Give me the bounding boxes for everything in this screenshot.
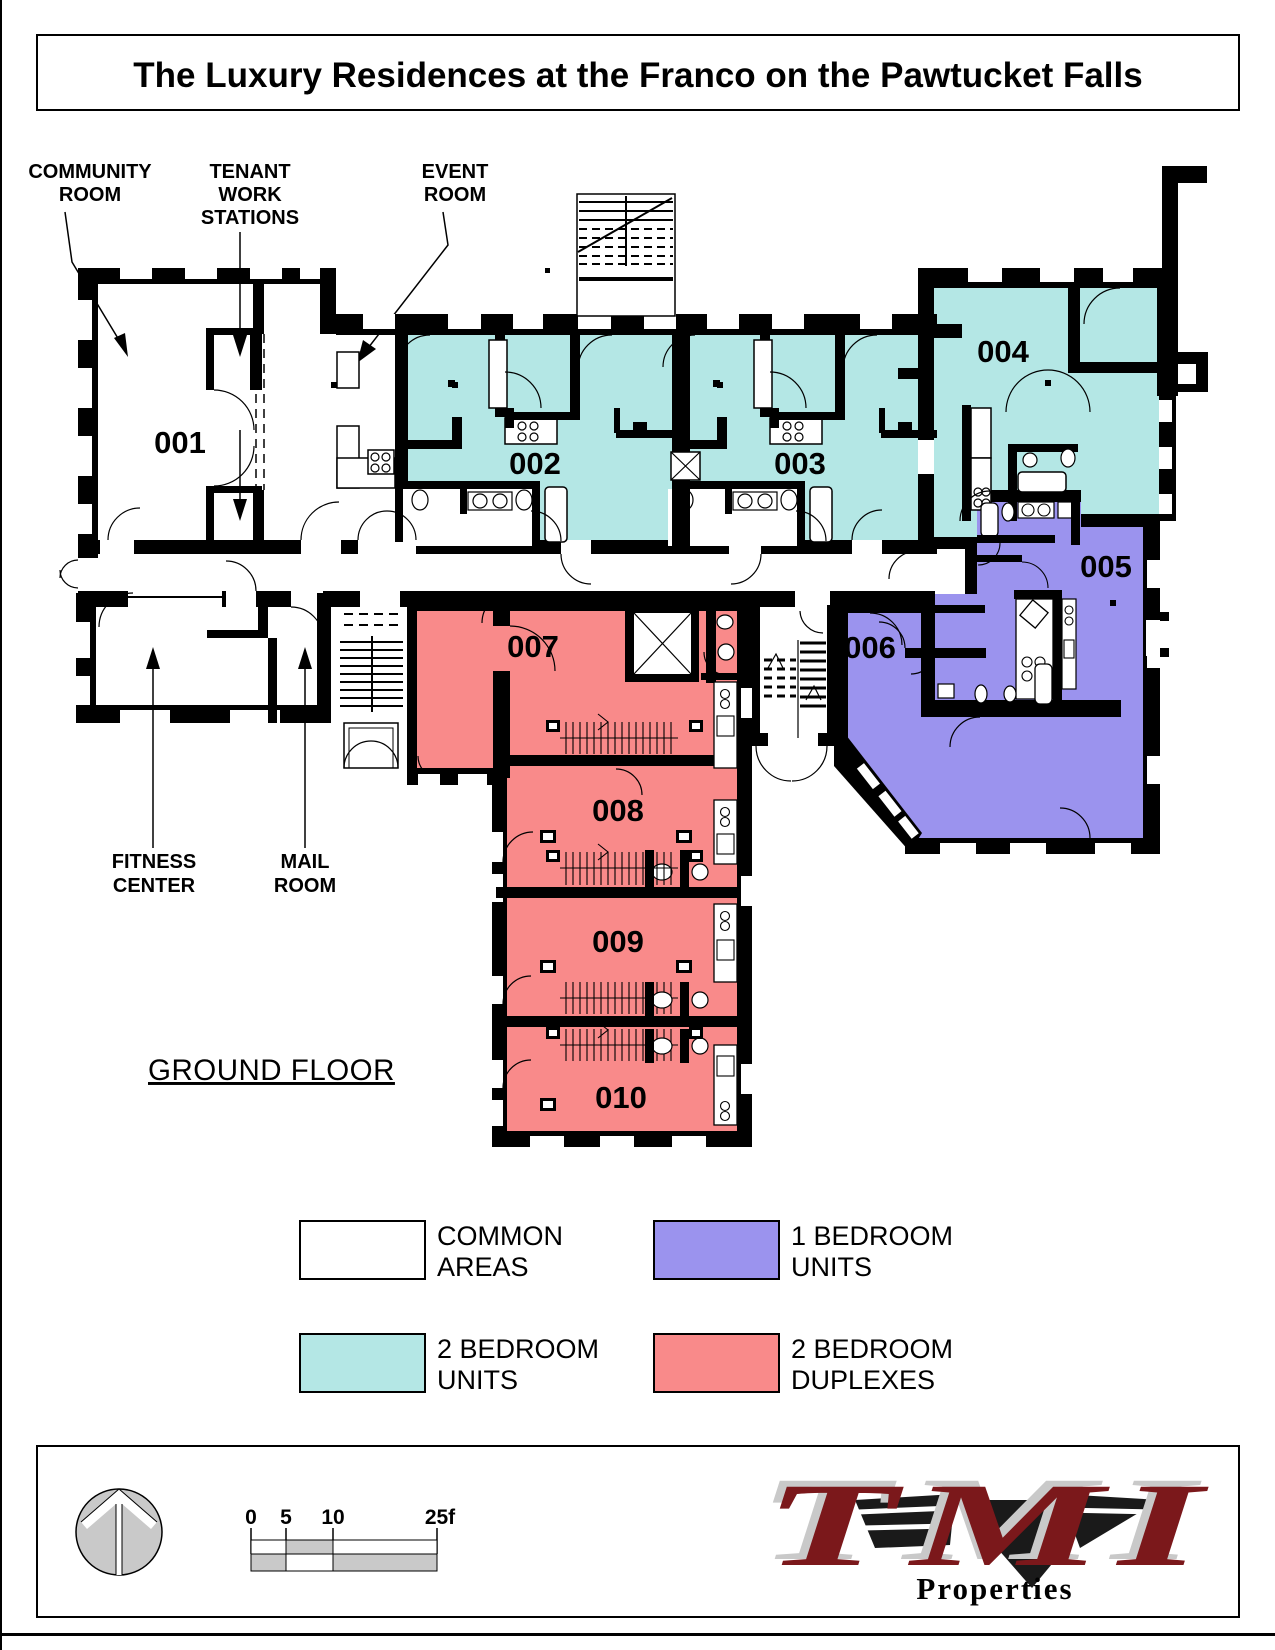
svg-text:003: 003 [774,446,826,481]
svg-text:MAIL: MAIL [281,851,330,873]
svg-text:Properties: Properties [916,1571,1073,1606]
svg-text:EVENT: EVENT [422,161,489,183]
svg-text:WORK: WORK [218,184,282,206]
svg-text:FITNESS: FITNESS [112,851,196,873]
svg-text:The Luxury Residences at the F: The Luxury Residences at the Franco on t… [133,56,1142,95]
svg-text:007: 007 [507,629,559,664]
svg-text:STATIONS: STATIONS [201,207,299,229]
svg-text:AREAS: AREAS [437,1252,529,1282]
svg-text:ROOM: ROOM [424,184,486,206]
svg-text:2 BEDROOM: 2 BEDROOM [791,1334,953,1364]
svg-text:1 BEDROOM: 1 BEDROOM [791,1221,953,1251]
svg-text:UNITS: UNITS [791,1252,872,1282]
svg-text:CENTER: CENTER [113,875,196,897]
svg-text:008: 008 [592,793,644,828]
svg-text:25f: 25f [425,1506,456,1529]
svg-text:COMMON: COMMON [437,1221,563,1251]
svg-text:DUPLEXES: DUPLEXES [791,1365,935,1395]
svg-text:COMMUNITY: COMMUNITY [28,161,152,183]
svg-text:005: 005 [1080,549,1132,584]
svg-text:002: 002 [509,446,561,481]
svg-text:5: 5 [280,1506,292,1529]
svg-text:TENANT: TENANT [209,161,290,183]
svg-text:ROOM: ROOM [274,875,336,897]
svg-text:004: 004 [977,334,1029,369]
svg-text:GROUND FLOOR: GROUND FLOOR [148,1054,395,1087]
svg-text:010: 010 [595,1080,647,1115]
svg-text:10: 10 [321,1506,344,1529]
svg-text:009: 009 [592,924,644,959]
svg-text:001: 001 [154,425,206,460]
svg-text:2 BEDROOM: 2 BEDROOM [437,1334,599,1364]
svg-text:UNITS: UNITS [437,1365,518,1395]
svg-text:ROOM: ROOM [59,184,121,206]
svg-text:006: 006 [844,630,896,665]
svg-text:0: 0 [245,1506,257,1529]
